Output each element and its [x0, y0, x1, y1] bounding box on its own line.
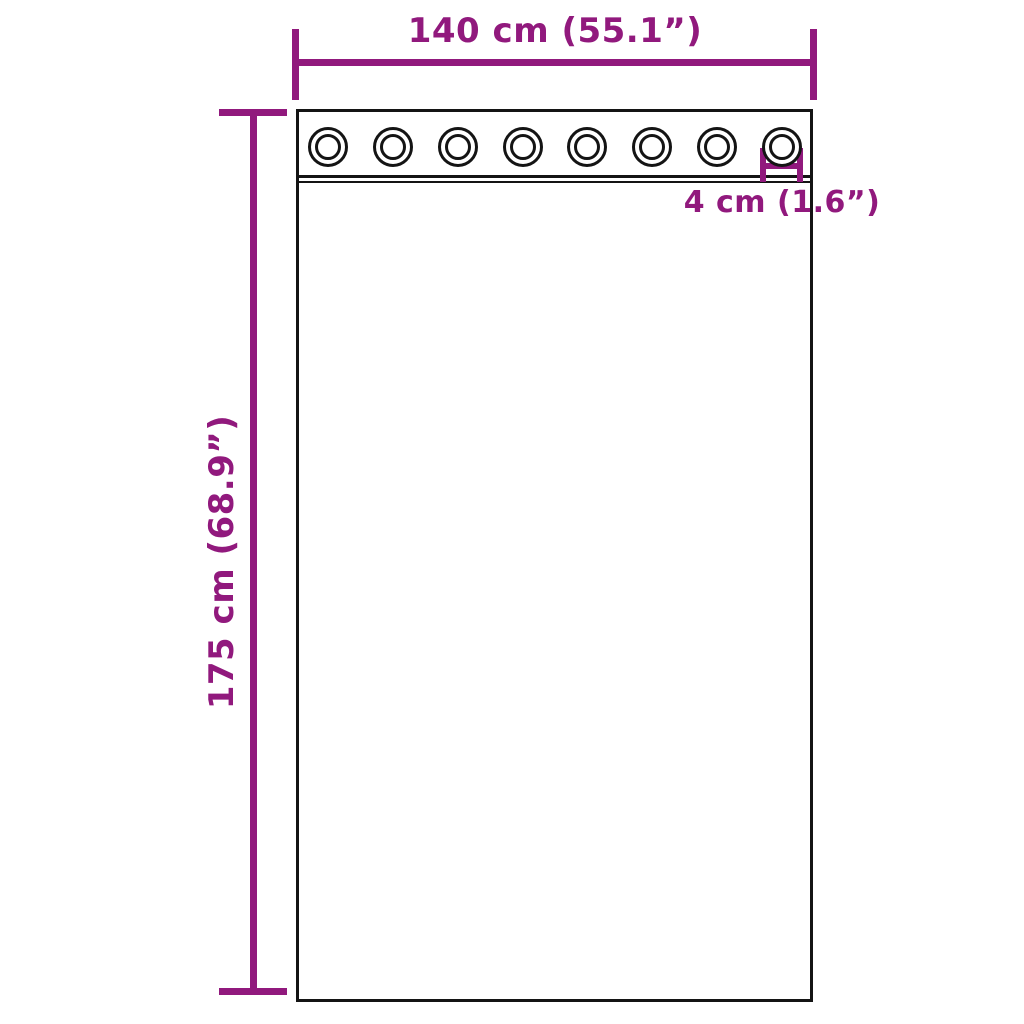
grommet-icon	[567, 127, 607, 167]
grommet-inner-ring	[769, 134, 795, 160]
width-dimension-right-tick	[810, 29, 817, 100]
height-dimension-line	[250, 112, 257, 992]
grommet-inner-ring	[380, 134, 406, 160]
grommet-band-seam-upper	[299, 175, 810, 178]
height-dimension-top-tick	[219, 109, 287, 116]
grommet-dimension-label: 4 cm (1.6”)	[684, 188, 881, 218]
grommet-band-seam-lower	[299, 181, 810, 183]
grommet-icon	[762, 127, 802, 167]
grommet-inner-ring	[315, 134, 341, 160]
curtain-diagram: 140 cm (55.1”) 175 cm (68.9”) 4 cm (1.6”…	[0, 0, 1024, 1024]
grommet-inner-ring	[445, 134, 471, 160]
curtain-outline	[296, 109, 813, 1002]
grommet-inner-ring	[510, 134, 536, 160]
grommet-inner-ring	[704, 134, 730, 160]
height-dimension-bottom-tick	[219, 988, 287, 995]
grommet-icon	[438, 127, 478, 167]
width-dimension-left-tick	[292, 29, 299, 100]
grommet-icon	[697, 127, 737, 167]
width-dimension-line	[292, 59, 817, 66]
grommet-icon	[308, 127, 348, 167]
grommet-icon	[503, 127, 543, 167]
grommet-icon	[373, 127, 413, 167]
grommet-inner-ring	[639, 134, 665, 160]
grommet-inner-ring	[574, 134, 600, 160]
width-dimension-label: 140 cm (55.1”)	[408, 14, 703, 48]
height-dimension-label: 175 cm (68.9”)	[205, 415, 239, 710]
grommet-icon	[632, 127, 672, 167]
